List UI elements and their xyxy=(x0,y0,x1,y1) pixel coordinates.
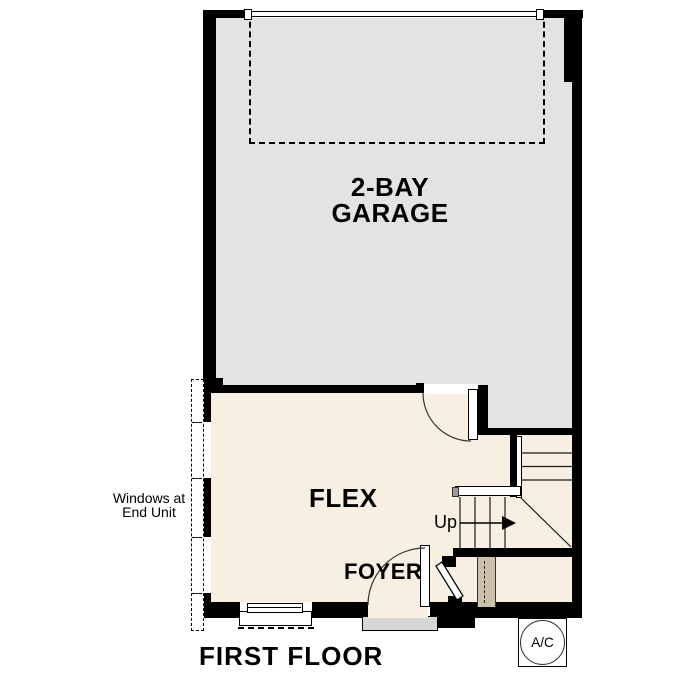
flex-room-label: FLEX xyxy=(309,483,377,514)
garage-door xyxy=(249,11,539,17)
first-floor-plan: 2-BAY GARAGE FLEX FOYER Up Windows at En… xyxy=(0,0,687,687)
garage-door-endcap xyxy=(244,9,252,20)
stair-railing-newel xyxy=(452,487,459,497)
garage-room-fill-extension xyxy=(488,386,572,428)
ac-circle-icon: A/C xyxy=(520,620,565,665)
garage-entry-door xyxy=(468,389,478,440)
entry-pier-wall xyxy=(437,618,475,628)
garage-room-label: 2-BAY GARAGE xyxy=(280,174,500,226)
optional-window-tick xyxy=(192,422,202,423)
entry-stoop xyxy=(362,616,438,631)
stair-soffit-strip xyxy=(477,557,496,607)
garage-door-endcap xyxy=(536,9,544,20)
wall xyxy=(203,390,211,422)
wall xyxy=(203,10,216,390)
wall xyxy=(203,385,424,393)
stair-soffit-dashed-line xyxy=(484,561,485,603)
optional-window-tick xyxy=(192,537,202,538)
closet-door-jamb-top xyxy=(442,556,456,567)
ac-label: A/C xyxy=(531,635,554,650)
wall xyxy=(203,478,211,537)
wall xyxy=(572,10,582,615)
front-door-opening xyxy=(368,602,428,618)
windows-note: Windows at End Unit xyxy=(103,491,195,519)
up-label: Up xyxy=(434,512,457,533)
wall xyxy=(453,548,582,557)
garage-bay-dashed-outline xyxy=(249,12,545,144)
foyer-label: FOYER xyxy=(344,559,422,585)
flex-window-sill xyxy=(239,611,312,626)
flex-window xyxy=(247,603,303,613)
optional-window-tick xyxy=(192,478,202,479)
ac-unit: A/C xyxy=(518,618,567,667)
wall xyxy=(478,428,582,435)
page-title: FIRST FLOOR xyxy=(199,641,383,672)
garage-label-line2: GARAGE xyxy=(331,198,448,228)
closet-door-jamb-bottom xyxy=(448,596,462,607)
optional-window-tick xyxy=(192,593,202,594)
optional-window-dashed-line xyxy=(238,627,314,629)
wall xyxy=(416,383,424,393)
windows-note-line2: End Unit xyxy=(122,504,176,520)
wall xyxy=(312,602,368,618)
flex-window-line xyxy=(248,607,301,608)
stair-railing-horizontal xyxy=(455,486,521,496)
